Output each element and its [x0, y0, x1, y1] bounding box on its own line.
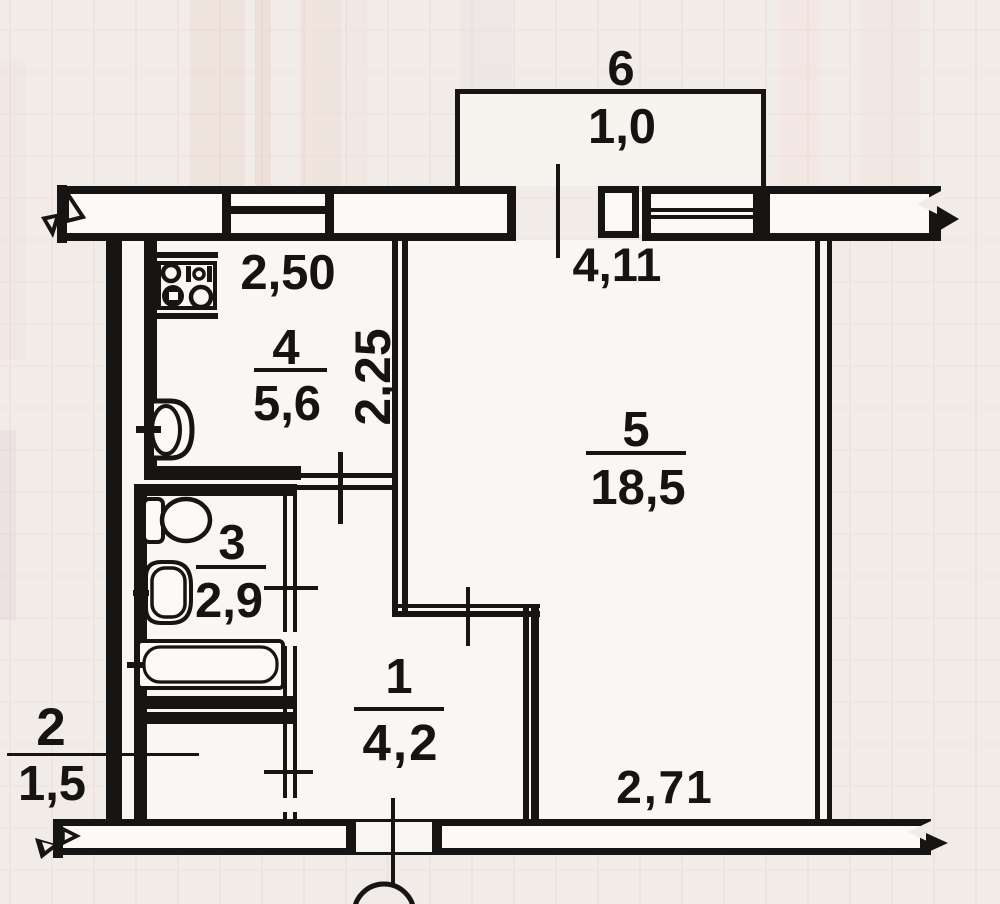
- svg-text:18,5: 18,5: [590, 461, 685, 515]
- svg-text:1,5: 1,5: [18, 757, 86, 811]
- svg-text:1,0: 1,0: [588, 100, 656, 154]
- svg-text:4,11: 4,11: [573, 238, 662, 291]
- svg-text:2,71: 2,71: [616, 761, 714, 813]
- svg-text:2,9: 2,9: [195, 574, 263, 628]
- svg-text:6: 6: [607, 42, 634, 96]
- svg-text:2,50: 2,50: [240, 246, 335, 300]
- svg-text:4: 4: [272, 321, 299, 375]
- svg-text:5: 5: [622, 403, 649, 457]
- svg-text:3: 3: [218, 516, 245, 570]
- svg-text:1: 1: [385, 650, 412, 704]
- svg-text:2: 2: [36, 698, 65, 757]
- svg-text:5,6: 5,6: [253, 377, 321, 431]
- svg-text:4,2: 4,2: [363, 714, 440, 771]
